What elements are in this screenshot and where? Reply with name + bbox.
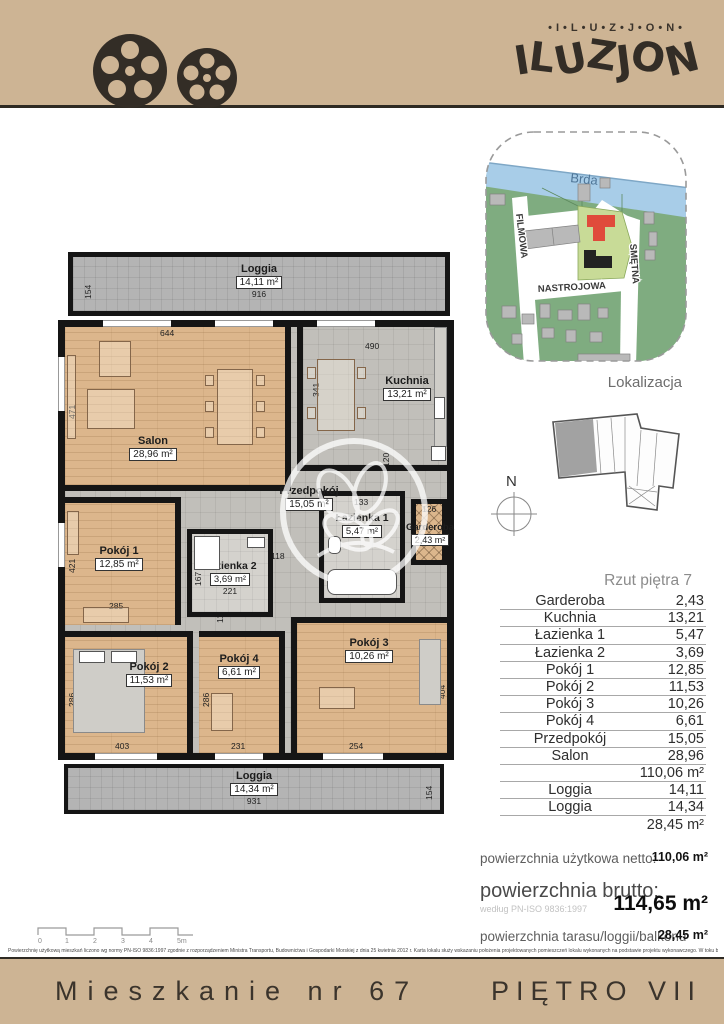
room-label: Garderoba [390, 522, 470, 533]
scale-bar: 0 1 2 3 4 5m [33, 915, 203, 947]
compass-north-label: N [506, 473, 517, 490]
window [215, 320, 273, 327]
summary-taras-row: powierzchnia tarasu/loggii/balkonu 28,45… [480, 928, 708, 946]
kitchen-table [317, 359, 355, 431]
room-label: Loggia [73, 263, 445, 275]
compass-icon: N [488, 472, 540, 542]
film-reels-icon [85, 18, 270, 108]
sink [247, 537, 265, 548]
apartment-card-page: •I•L•U•Z•J•O•N• ILUZJON [0, 0, 724, 1024]
window [317, 320, 375, 327]
svg-text:3: 3 [121, 938, 125, 945]
room-area: 14,11 m² [236, 276, 283, 289]
table-row: Kuchnia13,21 [500, 610, 706, 627]
room-area: 6,61 m² [218, 666, 260, 679]
room-area: 11,53 m² [126, 674, 173, 687]
window [323, 753, 383, 760]
table-row: Salon28,96 [500, 748, 706, 765]
area-table-title: Rzut piętra 7 [500, 572, 706, 593]
desk [211, 693, 233, 731]
table-usable-total-row: 110,06 m² [500, 765, 706, 782]
toilet [328, 536, 341, 554]
furniture [87, 389, 135, 429]
room-pokoj4: 286 231 Pokój 4 6,61 m² [199, 631, 285, 753]
room-area: 12,85 m² [95, 558, 142, 571]
map-river-label: Brda [570, 170, 600, 188]
svg-text:5m: 5m [177, 938, 187, 945]
desk [319, 687, 355, 709]
table-row: Pokój 211,53 [500, 679, 706, 696]
window [58, 357, 65, 411]
furniture [67, 511, 79, 555]
brand-logo: ILUZJON [514, 38, 698, 78]
svg-text:2: 2 [93, 938, 97, 945]
table-row: Pokój 112,85 [500, 662, 706, 679]
table-row: Garderoba2,43 [500, 593, 706, 610]
room-garderoba: 126 Garderoba 2,43 m² [411, 499, 447, 565]
header-band: •I•L•U•Z•J•O•N• ILUZJON [0, 0, 724, 108]
room-area: 3,69 m² [210, 573, 250, 586]
table-outdoor-total-row: 28,45 m² [500, 816, 706, 833]
room-salon: 644 471 Salon 28,96 m² [65, 327, 291, 491]
room-label: Loggia [68, 770, 440, 782]
apartment-number: Mieszkanie nr 67 [0, 976, 419, 1007]
room-pokoj1: 421 285 Pokój 1 12,85 m² [65, 497, 181, 625]
room-pokoj2: 286 403 Pokój 2 11,53 m² [65, 631, 193, 753]
table-row: Pokój 46,61 [500, 713, 706, 730]
furniture [99, 341, 131, 377]
room-label: Salon [113, 435, 193, 447]
table-row: Pokój 310,26 [500, 696, 706, 713]
floor-overview-plan [545, 408, 690, 538]
room-label: Pokój 2 [113, 661, 185, 673]
svg-text:0: 0 [38, 938, 42, 945]
floor-plan: 154 Loggia 14,11 m² 916 644 471 [50, 228, 460, 814]
summary-brutto-row: powierzchnia brutto: według PN-ISO 9836:… [480, 880, 708, 914]
shower [194, 536, 220, 570]
room-przedpokoj-label: Przedpokój 15,05 m² [261, 485, 357, 511]
window [103, 320, 171, 327]
room-pokoj3: 404 254 Pokój 3 10,26 m² [291, 617, 447, 753]
table-row: Loggia14,34 [500, 799, 706, 816]
room-label: Kuchnia [367, 375, 447, 387]
table-row: Loggia14,11 [500, 782, 706, 799]
room-label: Pokój 1 [79, 545, 159, 557]
room-lazienka2: 167 Łazienka 2 3,69 m² 221 [187, 529, 273, 617]
footer-band: Mieszkanie nr 67 PIĘTRO VII [0, 959, 724, 1024]
bathtub [327, 569, 397, 595]
floor-number: PIĘTRO VII [491, 976, 724, 1007]
room-area: 28,96 m² [129, 448, 176, 461]
table-row: Przedpokój15,05 [500, 731, 706, 748]
room-area: 10,26 m² [345, 650, 392, 663]
area-summary: powierzchnia użytkowa netto: 110,06 m² p… [480, 850, 708, 946]
room-label: Łazienka 1 [324, 512, 400, 524]
area-table: Rzut piętra 7 Garderoba2,43 Kuchnia13,21… [500, 572, 706, 834]
summary-netto-row: powierzchnia użytkowa netto: 110,06 m² [480, 850, 708, 868]
room-area: 5,47 m² [342, 525, 382, 538]
fridge [431, 446, 446, 461]
furniture-dining-table [217, 369, 253, 445]
window [95, 753, 157, 760]
location-map: Brda NASTROJOWA FILMOWA SMĘTNA [482, 128, 690, 365]
room-kuchnia: 490 341 269 Kuchnia 13,21 m² [297, 327, 447, 471]
brand-letter: N [661, 36, 703, 83]
legal-disclaimer: Powierzchnię użytkową mieszkań liczono w… [8, 948, 718, 954]
room-loggia-top: 154 Loggia 14,11 m² 916 [68, 252, 450, 316]
room-label: Pokój 3 [333, 637, 405, 649]
apartment-block: 644 471 Salon 28,96 m² 490 [58, 320, 454, 760]
window [58, 523, 65, 567]
brand-wordmark-small: •I•L•U•Z•J•O•N• [548, 22, 686, 34]
map-caption: Lokalizacja [482, 374, 690, 391]
table-row: Łazienka 23,69 [500, 645, 706, 662]
wardrobe [419, 639, 441, 705]
svg-text:4: 4 [149, 938, 153, 945]
room-area: 13,21 m² [383, 388, 430, 401]
desk [83, 607, 129, 623]
room-area: 2,43 m² [411, 534, 450, 546]
room-label: Pokój 4 [203, 653, 275, 665]
svg-text:1: 1 [65, 938, 69, 945]
window [215, 753, 263, 760]
table-row: Łazienka 15,47 [500, 627, 706, 644]
room-loggia-bottom: 154 Loggia 14,34 m² 931 [64, 764, 444, 814]
furniture [67, 355, 76, 439]
room-area: 14,34 m² [230, 783, 277, 796]
